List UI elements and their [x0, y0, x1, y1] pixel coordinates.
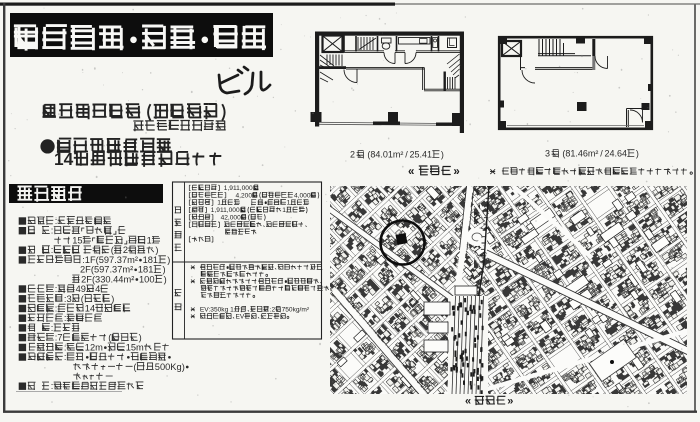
- svg-text:): ): [167, 255, 170, 265]
- svg-text:): ): [636, 149, 639, 159]
- svg-text:1,911,000: 1,911,000: [211, 207, 240, 214]
- svg-text:(81.46m²: (81.46m²: [562, 149, 598, 159]
- svg-text:): ): [155, 245, 158, 255]
- svg-text:181: 181: [138, 265, 154, 275]
- svg-text::: :: [64, 352, 67, 362]
- svg-text:2F(330.44m²: 2F(330.44m²: [81, 274, 134, 284]
- svg-text:): ): [182, 362, 185, 372]
- svg-text:2F(597.37m²: 2F(597.37m²: [80, 265, 133, 275]
- svg-text:49: 49: [76, 284, 86, 294]
- svg-text::: :: [64, 313, 67, 323]
- svg-text:4: 4: [95, 284, 100, 294]
- svg-text::2: :2: [270, 307, 276, 314]
- svg-text::3: :3: [64, 294, 72, 304]
- svg-text:): ): [441, 150, 444, 160]
- svg-text:14: 14: [85, 304, 95, 314]
- svg-text::1F(597.37m²: :1F(597.37m²: [82, 255, 138, 265]
- svg-text:4,000: 4,000: [294, 192, 311, 199]
- svg-text::: :: [55, 304, 58, 314]
- svg-text:1: 1: [217, 200, 221, 207]
- svg-text::: :: [51, 226, 54, 236]
- svg-text:12m: 12m: [85, 342, 103, 352]
- svg-text::: :: [51, 323, 54, 333]
- svg-text:2: 2: [350, 150, 355, 160]
- svg-text:3: 3: [545, 149, 550, 159]
- svg-text:): ): [139, 333, 142, 343]
- svg-text:500Kg: 500Kg: [155, 362, 182, 372]
- svg-text:15m: 15m: [126, 342, 144, 352]
- svg-text:1,911,000: 1,911,000: [224, 185, 253, 192]
- svg-text:15: 15: [72, 235, 82, 245]
- svg-text:»: »: [507, 396, 513, 408]
- svg-text:2: 2: [123, 245, 128, 255]
- svg-text:): ): [111, 294, 114, 304]
- svg-text:«: «: [465, 396, 471, 408]
- svg-text:42,000: 42,000: [221, 214, 242, 221]
- svg-text:EV:350kg 1: EV:350kg 1: [200, 307, 234, 314]
- svg-text:1: 1: [282, 207, 286, 214]
- svg-text:4,200: 4,200: [236, 192, 253, 199]
- svg-text:750kg/m²: 750kg/m²: [282, 307, 310, 314]
- svg-text::: :: [51, 245, 54, 255]
- svg-text:«: «: [408, 166, 414, 178]
- svg-text:»: »: [453, 166, 459, 178]
- svg-text:181: 181: [143, 255, 159, 265]
- svg-text:(84.01m²: (84.01m²: [367, 150, 403, 160]
- svg-text:100: 100: [139, 274, 155, 284]
- svg-text:): ): [164, 274, 167, 284]
- svg-text::7: :7: [55, 333, 63, 343]
- svg-text::: :: [55, 284, 58, 294]
- svg-text:): ): [163, 265, 166, 275]
- svg-text:24.64: 24.64: [605, 149, 628, 159]
- svg-text:EV: EV: [236, 314, 245, 321]
- svg-text:25.41: 25.41: [410, 150, 433, 160]
- svg-text:1: 1: [287, 200, 291, 207]
- svg-text::: :: [51, 381, 54, 391]
- svg-text:14: 14: [54, 149, 74, 169]
- svg-text:1: 1: [147, 235, 152, 245]
